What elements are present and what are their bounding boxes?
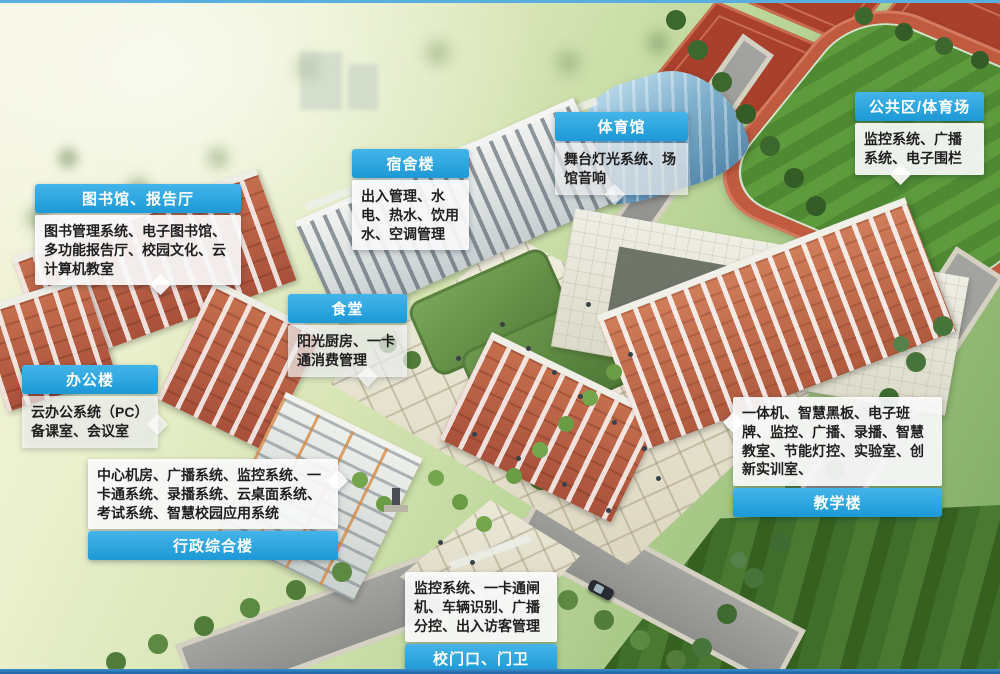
callout-office: 办公楼 云办公系统（PC）备课室、会议室	[22, 365, 158, 448]
callout-canteen-title: 食堂	[288, 294, 407, 323]
callout-public-area-body: 监控系统、广播系统、电子围栏	[855, 123, 984, 175]
top-border-line	[0, 0, 1000, 3]
callout-library: 图书馆、报告厅 图书管理系统、电子图书馆、多功能报告厅、校园文化、云计算机教室	[35, 184, 241, 285]
callout-dorm: 宿舍楼 出入管理、水电、热水、饮用水、空调管理	[352, 149, 469, 250]
callout-teaching-title: 教学楼	[733, 488, 942, 517]
callout-public-area-title: 公共区/体育场	[855, 92, 984, 121]
campus-rendering: 图书馆、报告厅 图书管理系统、电子图书馆、多功能报告厅、校园文化、云计算机教室 …	[0, 0, 1000, 674]
callout-office-title: 办公楼	[22, 365, 158, 394]
distant-building	[348, 64, 378, 110]
callout-admin: 中心机房、广播系统、监控系统、一卡通系统、录播系统、云桌面系统、考试系统、智慧校…	[88, 459, 338, 560]
callout-teaching: 一体机、智慧黑板、电子班牌、监控、广播、录播、智慧教室、节能灯控、实验室、创新实…	[733, 397, 942, 517]
callout-library-body: 图书管理系统、电子图书馆、多功能报告厅、校园文化、云计算机教室	[35, 215, 241, 285]
callout-public-area: 公共区/体育场 监控系统、广播系统、电子围栏	[855, 92, 984, 175]
callout-canteen-body: 阳光厨房、一卡通消费管理	[288, 325, 407, 377]
callout-canteen: 食堂 阳光厨房、一卡通消费管理	[288, 294, 407, 377]
callout-teaching-body: 一体机、智慧黑板、电子班牌、监控、广播、录播、智慧教室、节能灯控、实验室、创新实…	[733, 397, 942, 486]
statue	[392, 488, 400, 506]
distant-building	[300, 52, 342, 110]
callout-gym-title: 体育馆	[555, 112, 688, 141]
bottom-border-line	[0, 669, 1000, 674]
statue-base	[384, 505, 408, 512]
callout-dorm-title: 宿舍楼	[352, 149, 469, 178]
callout-dorm-body: 出入管理、水电、热水、饮用水、空调管理	[352, 180, 469, 250]
callout-office-body: 云办公系统（PC）备课室、会议室	[22, 396, 158, 448]
callout-library-title: 图书馆、报告厅	[35, 184, 241, 213]
callout-gym-body: 舞台灯光系统、场馆音响	[555, 143, 688, 195]
callout-gate-body: 监控系统、一卡通闸机、车辆识别、广播分控、出入访客管理	[405, 572, 557, 642]
callout-admin-title: 行政综合楼	[88, 531, 338, 560]
callout-gym: 体育馆 舞台灯光系统、场馆音响	[555, 112, 688, 195]
callout-gate: 监控系统、一卡通闸机、车辆识别、广播分控、出入访客管理 校门口、门卫	[405, 572, 557, 673]
callout-admin-body: 中心机房、广播系统、监控系统、一卡通系统、录播系统、云桌面系统、考试系统、智慧校…	[88, 459, 338, 529]
